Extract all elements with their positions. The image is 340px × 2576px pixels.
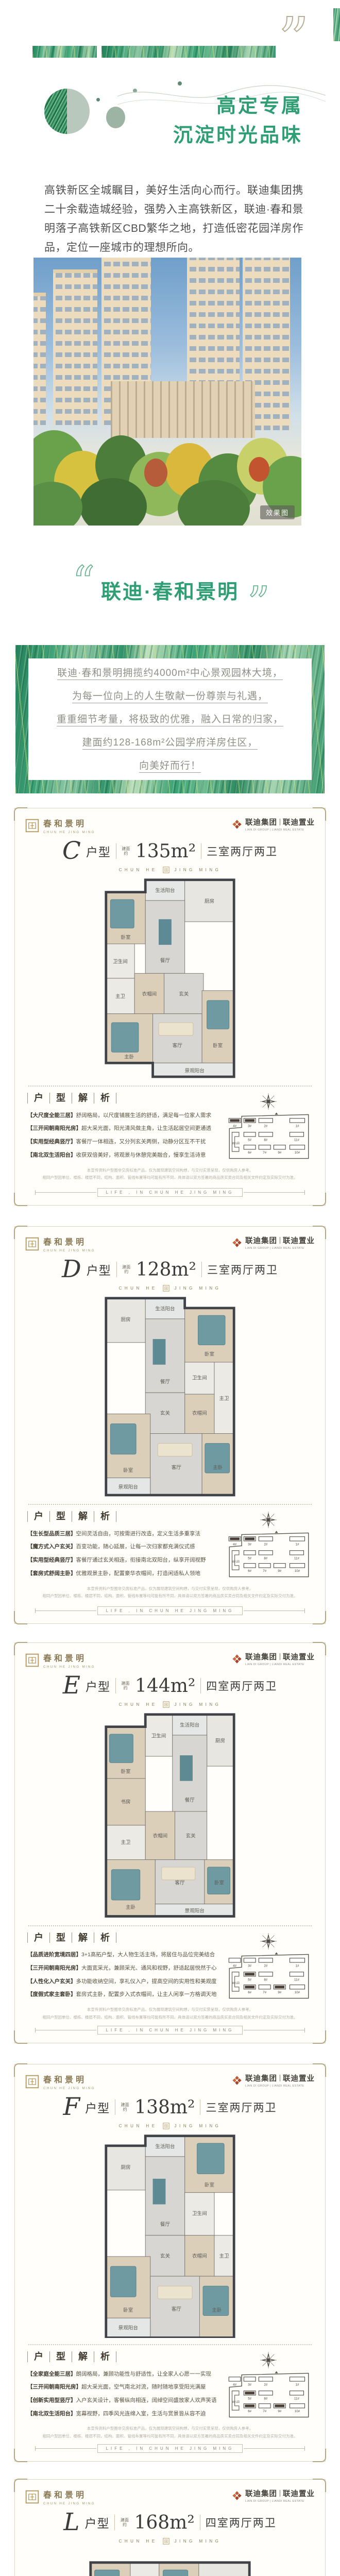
project-name: 联迪·春和景明	[101, 576, 239, 605]
quote-line: 向美好而行！	[139, 760, 201, 773]
life-slogan: LIFE , IN CHUN HE JING MING	[15, 2444, 325, 2453]
room-label: 景观阳台	[185, 1068, 205, 1074]
knot-icon	[232, 1238, 242, 1248]
room-label: 衣帽间	[192, 1411, 207, 1417]
quote-line: 重重细节考量，将极致的优雅，融入日常的归家，	[57, 714, 283, 726]
chunhejingming-logo: 春和景明CHUN HE JING MING	[25, 1651, 95, 1669]
dot-decoration	[96, 98, 100, 101]
tree	[249, 457, 269, 482]
room-label: 主卧	[126, 1905, 136, 1911]
quote-box-inner: 联迪·春和景明拥揽约4000m²中心景观园林大境， 为每一位向上的人生敬献一份尊…	[28, 658, 312, 780]
room-label: 衣帽间	[192, 2253, 207, 2259]
room-label: 主卧	[213, 1465, 223, 1471]
quote-line: 建面约128-168m²公园学府洋房住区，	[82, 737, 258, 750]
knot-icon	[232, 1654, 242, 1664]
site-plan	[226, 2370, 311, 2420]
unit-highlights: 【生长型品质三居】空间灵活自由，可按需进行改造，定义生活多重享法 【魔方式入户玄…	[27, 1528, 221, 1581]
hero-title: 高定专属 沉淀时光品味	[173, 92, 303, 150]
liandi-group-logo: 联迪集团联迪置业 LIAN DI GROUP | LIANDI REAL EST…	[232, 817, 315, 832]
compass-icon	[260, 1933, 277, 1950]
analysis-heading: 户型解析	[27, 1511, 221, 1522]
room-label: 餐厅	[160, 1379, 171, 1385]
project-name-heading: “ 联迪·春和景明 ”	[0, 576, 340, 605]
room-label: 客厅	[172, 1465, 182, 1471]
seal-icon	[25, 819, 39, 833]
brand-subtitle: CHUN HE JING MING	[15, 867, 325, 873]
floor-plan-f: 厨房 生活阳台 卧室 餐厅 卫生间 衣帽间 主卫 玄关 卧室 客厅 主卧 景观阳…	[104, 2133, 236, 2338]
room-label: 书房	[121, 1799, 130, 1805]
unit-card-l: 春和景明CHUN HE JING MING 联迪集团联迪置业 LIAN DI G…	[14, 2479, 326, 2576]
quote-line: 联迪·春和景明拥揽约4000m²中心景观园林大境，	[57, 668, 283, 680]
unit-highlights: 【大尺度全能三居】舒阔格局，以尺度铺展生活的舒适，满足每一位家人需求 【三开间朝…	[27, 1109, 221, 1162]
room-label: 生活阳台	[155, 888, 175, 894]
brand-subtitle: CHUN HE JING MING	[15, 1701, 325, 1708]
site-plan	[226, 1530, 311, 1580]
room-label: 客厅	[175, 1880, 185, 1886]
unit-title: D户型 建面约 128m² 三室两厅两卫	[15, 1259, 325, 1280]
liandi-group-logo: 联迪集团联迪置业 LIAN DI GROUP | LIANDI REAL EST…	[232, 1651, 315, 1666]
quote-mark-icon: ”	[278, 9, 306, 70]
knot-icon	[232, 2075, 242, 2086]
room-label: 卫生间	[192, 2211, 207, 2217]
life-slogan: LIFE , IN CHUN HE JING MING	[15, 1606, 325, 1615]
card-disclaimer: 本宣传资料户型图非交房标准产品，仅为展现建筑空间构想，与交付实景呈现，仅供购房人…	[15, 2006, 325, 2021]
seal-icon	[25, 2490, 39, 2504]
unit-card-d: 春和景明CHUN HE JING MING 联迪集团联迪置业 LIAN DI G…	[14, 1226, 326, 1624]
room-label: 卧室	[123, 1467, 133, 1473]
room-label: 衣帽间	[142, 991, 157, 997]
floor-plan-e: 卧室 卫生间 生活阳台 厨房 餐厅 书房 主卫 衣帽间 玄关 主卧 客厅 卧室 …	[104, 1712, 236, 1919]
open-quote-icon: “	[72, 571, 93, 595]
room-label: 卧室	[121, 1769, 131, 1775]
room-label: 景观阳台	[118, 2325, 138, 2331]
green-brush-strip-right	[101, 46, 276, 58]
green-quote-box: 联迪·春和景明拥揽约4000m²中心景观园林大境， 为每一位向上的人生敬献一份尊…	[15, 645, 325, 793]
floor-plan-d: 厨房 生活阳台 卧室 餐厅 卫生间 衣帽间 主卫 玄关 卧室 客厅 主卧 景观阳…	[104, 1296, 236, 1498]
building-rendering-image: 效果图	[33, 258, 301, 526]
life-slogan: LIFE , IN CHUN HE JING MING	[15, 2026, 325, 2035]
tower-building	[53, 269, 97, 425]
green-corner-tab	[333, 8, 340, 41]
knot-icon	[232, 2490, 242, 2501]
seal-icon	[163, 2538, 169, 2545]
room-label: 主卧	[124, 1054, 134, 1060]
chunhejingming-logo: 春和景明CHUN HE JING MING	[25, 1235, 95, 1252]
unit-highlights: 【全家庭全能三居】朗阔格局，兼顾功能性与舒适性，让全家人心愿一一实现 【三开间朝…	[27, 2368, 221, 2421]
brand-subtitle: CHUN HE JING MING	[15, 1285, 325, 1292]
room-label: 餐厅	[185, 1797, 195, 1803]
chunhejingming-logo: 春和景明CHUN HE JING MING	[25, 817, 95, 834]
analysis-heading: 户型解析	[27, 2351, 221, 2362]
quote-line: 为每一位向上的人生敬献一份尊崇与礼遇，	[72, 691, 268, 703]
room-label: 卧室	[214, 1880, 225, 1886]
unit-card-c: 春和景明CHUN HE JING MING 联迪集团联迪置业 LIAN DI G…	[14, 808, 326, 1206]
room-label: 客厅	[172, 2306, 182, 2312]
brand-subtitle: CHUN HE JING MING	[15, 2123, 325, 2129]
room-label: 玄关	[179, 991, 189, 997]
rendering-watermark: 效果图	[260, 505, 295, 519]
room-label: 客厅	[173, 1043, 183, 1049]
compass-icon	[260, 2351, 277, 2369]
site-plan	[226, 1952, 311, 2001]
unit-card-e: 春和景明CHUN HE JING MING 联迪集团联迪置业 LIAN DI G…	[14, 1642, 326, 2043]
seal-icon	[163, 867, 169, 873]
seal-icon	[163, 1701, 169, 1708]
room-label: 主卫	[219, 1396, 230, 1402]
room-label: 玄关	[160, 2253, 171, 2259]
room-label: 卧室	[213, 1043, 223, 1049]
liandi-group-logo: 联迪集团联迪置业 LIAN DI GROUP | LIANDI REAL EST…	[232, 2073, 315, 2088]
card-disclaimer: 本宣传资料户型图非交房标准产品，仅为展现建筑空间构想，与交付实景呈现，仅供购房人…	[15, 1167, 325, 1182]
room-label: 生活阳台	[180, 1722, 199, 1728]
room-label: 景观阳台	[118, 1484, 138, 1490]
chunhejingming-logo: 春和景明CHUN HE JING MING	[25, 2073, 95, 2090]
room-label: 卫生间	[113, 959, 128, 965]
liandi-group-logo: 联迪集团联迪置业 LIAN DI GROUP | LIANDI REAL EST…	[232, 2488, 315, 2503]
room-label: 衣帽间	[153, 1833, 168, 1839]
unit-title: C户型 建面约 135m² 三室两厅两卫	[15, 840, 325, 862]
floor-plan-c: 生活阳台 厨房 卧室 餐厅 卫生间 主卫 衣帽间 玄关 主卧 客厅 卧室 景观阳…	[104, 877, 236, 1079]
compass-icon	[260, 1093, 277, 1110]
tree	[144, 459, 167, 487]
room-label: 卧室	[121, 935, 131, 941]
room-label: 生活阳台	[155, 1306, 175, 1312]
unit-highlights: 【品质进阶宽境四居】3+1高拓户型，大人物生活主场，将居住与品位完美结合 【三开…	[27, 1948, 221, 2002]
unit-title: F户型 建面约 138m² 三室两厅两卫	[15, 2096, 325, 2118]
life-slogan: LIFE , IN CHUN HE JING MING	[15, 1188, 325, 1197]
unit-card-f: 春和景明CHUN HE JING MING 联迪集团联迪置业 LIAN DI G…	[14, 2064, 326, 2462]
room-label: 卧室	[123, 2307, 133, 2313]
room-label: 厨房	[121, 1317, 130, 1323]
seal-icon	[25, 1237, 39, 1251]
liandi-group-logo: 联迪集团联迪置业 LIAN DI GROUP | LIANDI REAL EST…	[232, 1235, 315, 1250]
hero-section: ” 高定专属 沉淀时光品味 高铁新区全城瞩目，美好生活向心而行。联迪集团携二十余…	[0, 0, 340, 258]
room-label: 玄关	[160, 1411, 171, 1417]
room-label: 卧室	[205, 2182, 215, 2188]
analysis-heading: 户型解析	[27, 1933, 221, 1943]
room-label: 卫生间	[151, 1733, 166, 1739]
knot-icon	[232, 819, 242, 829]
room-label: 餐厅	[160, 958, 171, 964]
room-label: 主卫	[219, 2253, 230, 2259]
room-label: 主卧	[212, 2307, 222, 2313]
unit-title: L户型 建面约 168m² 四室两厅两卫	[15, 2512, 325, 2533]
chunhejingming-logo: 春和景明CHUN HE JING MING	[25, 2488, 95, 2505]
textured-circle-decoration	[44, 89, 90, 134]
card-disclaimer: 本宣传资料户型图非交房标准产品，仅为展现建筑空间构想，与交付实景呈现，仅供购房人…	[15, 2425, 325, 2440]
tower-building	[33, 293, 46, 425]
analysis-heading: 户型解析	[27, 1093, 221, 1104]
promo-article-page: ” 高定专属 沉淀时光品味 高铁新区全城瞩目，美好生活向心而行。联迪集团携二十余…	[0, 0, 340, 2576]
room-label: 主卫	[121, 1839, 131, 1845]
compass-icon	[260, 1511, 277, 1529]
brand-subtitle: CHUN HE JING MING	[15, 2538, 325, 2545]
room-label: 餐厅	[160, 2222, 171, 2228]
room-label: 生活阳台	[155, 2144, 175, 2150]
seal-icon	[163, 1285, 169, 1292]
room-label: 厨房	[215, 1738, 225, 1744]
room-label: 玄关	[186, 1833, 196, 1839]
room-label: 厨房	[205, 899, 214, 905]
room-label: 厨房	[121, 2164, 130, 2171]
seal-icon	[163, 2123, 169, 2129]
card-disclaimer: 本宣传资料户型图非交房标准产品，仅为展现建筑空间构想，与交付实景呈现，仅供购房人…	[15, 1585, 325, 1600]
close-quote-icon: ”	[247, 591, 268, 616]
room-label: 景观阳台	[185, 1908, 205, 1914]
seal-icon	[25, 1653, 39, 1667]
room-label: 卫生间	[192, 1375, 207, 1381]
low-building	[111, 381, 255, 438]
room-label: 主卫	[115, 993, 126, 999]
floor-plan-l: 卧室 卫生间 卧室 厨房 储藏间 餐厅 玄关 衣帽间 主卫 主卧 卧室 客厅 景…	[88, 2560, 252, 2576]
seal-icon	[25, 2075, 39, 2089]
green-brush-strip-left	[32, 46, 97, 58]
room-label: 卧室	[205, 1351, 215, 1358]
hero-paragraph: 高铁新区全城瞩目，美好生活向心而行。联迪集团携二十余载造城经验，强势入主高铁新区…	[44, 181, 303, 257]
unit-title: E户型 建面约 144m² 四室两厅两卫	[15, 1675, 325, 1697]
site-plan	[226, 1112, 311, 1161]
